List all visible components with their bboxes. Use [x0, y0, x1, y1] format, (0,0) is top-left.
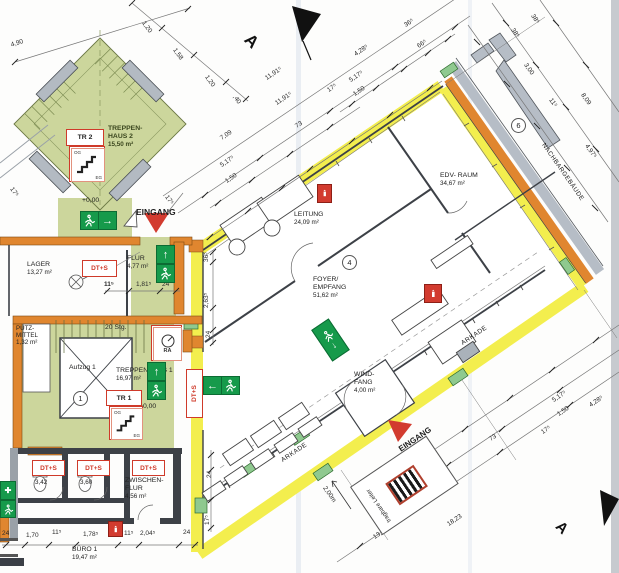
- stairwell-2-diamond: [0, 30, 186, 210]
- plan-drawing: [0, 0, 619, 573]
- dts-smoke-detector-label: DT+S: [132, 460, 165, 476]
- emergency-exit-runner-icon: [147, 381, 166, 400]
- dts-smoke-detector-label: DT+S: [77, 460, 110, 476]
- position-marker-6: 6: [511, 118, 526, 133]
- dim-label: 24: [183, 529, 190, 536]
- room-label-windfang: WIND-FANG 4,00 m²: [354, 371, 375, 394]
- dim-label: 24: [2, 530, 9, 537]
- dim-label: 1,81⁵: [136, 281, 151, 288]
- emergency-exit-runner-icon: [0, 500, 16, 518]
- level-label: +0,00: [82, 197, 99, 205]
- room-label-aufzug: Aufzug 1: [69, 364, 96, 372]
- emergency-exit-runner-icon: [156, 264, 175, 283]
- emergency-exit-runner-icon: [221, 376, 240, 395]
- exit-arrow-left-icon: ←: [203, 376, 222, 395]
- room-label-putzmittel: PUTZ-MITTEL 1,32 m²: [16, 325, 38, 346]
- first-aid-icon: ✚: [0, 481, 16, 500]
- fire-extinguisher-icon: [424, 284, 442, 303]
- room-label-leitung: LEITUNG24,09 m²: [294, 211, 323, 226]
- room-label-foyer: FOYER/EMPFANG 51,62 m²: [313, 276, 346, 299]
- room-label-wc2: 3,60: [80, 479, 92, 486]
- room-label-wc1: 3,42: [35, 479, 47, 486]
- steps-count-label: 20 Stg.: [105, 324, 127, 332]
- ladder-label: tragbare Leiter: [366, 487, 394, 523]
- room-label-flur: FLUR4,77 m²: [127, 255, 148, 270]
- dim-label: 2,04⁵: [140, 530, 155, 537]
- eingang-label-top: EINGANG: [136, 208, 176, 218]
- position-marker-1: 1: [73, 391, 88, 406]
- stair-pictogram-icon: OG EG: [69, 146, 105, 182]
- dim-label: 11⁵: [52, 529, 61, 536]
- dim-label: 1,78⁵: [83, 531, 98, 538]
- dim-label: 24: [205, 331, 212, 338]
- dim-label: 17⁵: [204, 515, 211, 525]
- room-label-lager: LAGER13,27 m²: [27, 261, 52, 276]
- dim-label: 11⁵: [104, 281, 114, 288]
- emergency-exit-runner-icon: [80, 211, 99, 230]
- dts-smoke-detector-label: DT+S: [186, 369, 203, 418]
- fire-extinguisher-icon: [108, 521, 123, 537]
- tr1-label-box: TR 1: [106, 390, 142, 406]
- dts-smoke-detector-label: DT+S: [32, 460, 65, 476]
- stair-pictogram-icon: OG EG: [109, 406, 143, 440]
- dim-label: 11⁵: [124, 530, 133, 537]
- tr2-label-box: TR 2: [66, 129, 104, 146]
- floor-plan: 1,20 1,58 1,20 ,40 4,90 17⁵ 11,91⁵ 11,91…: [0, 0, 619, 573]
- position-marker-4: 4: [342, 255, 357, 270]
- room-label-zwischenflur: ZWISCHEN-FLUR 4,56 m²: [125, 477, 164, 500]
- smoke-vent-ra-icon: RA: [151, 325, 182, 361]
- room-label-buero1: BÜRO 119,47 m²: [72, 546, 97, 561]
- exit-arrow-up-icon: ↑: [156, 245, 175, 264]
- fire-extinguisher-icon: [317, 184, 332, 203]
- dts-smoke-detector-label: DT+S: [82, 260, 117, 277]
- ladder-icon: [385, 465, 428, 506]
- room-label-edv: EDV- RAUM34,67 m²: [440, 172, 478, 187]
- dim-label: 1,70: [26, 532, 39, 539]
- dim-label: 2,63⁵: [203, 293, 210, 308]
- scan-edge: [611, 0, 619, 573]
- dim-label: 24: [206, 471, 213, 478]
- exit-arrow-up-icon: ↑: [147, 362, 166, 381]
- room-label-treppenhaus2: TREPPEN-HAUS 2 15,50 m²: [108, 125, 142, 148]
- dim-label: 36⁵: [203, 252, 210, 262]
- exit-arrow-right-icon: →: [98, 211, 117, 230]
